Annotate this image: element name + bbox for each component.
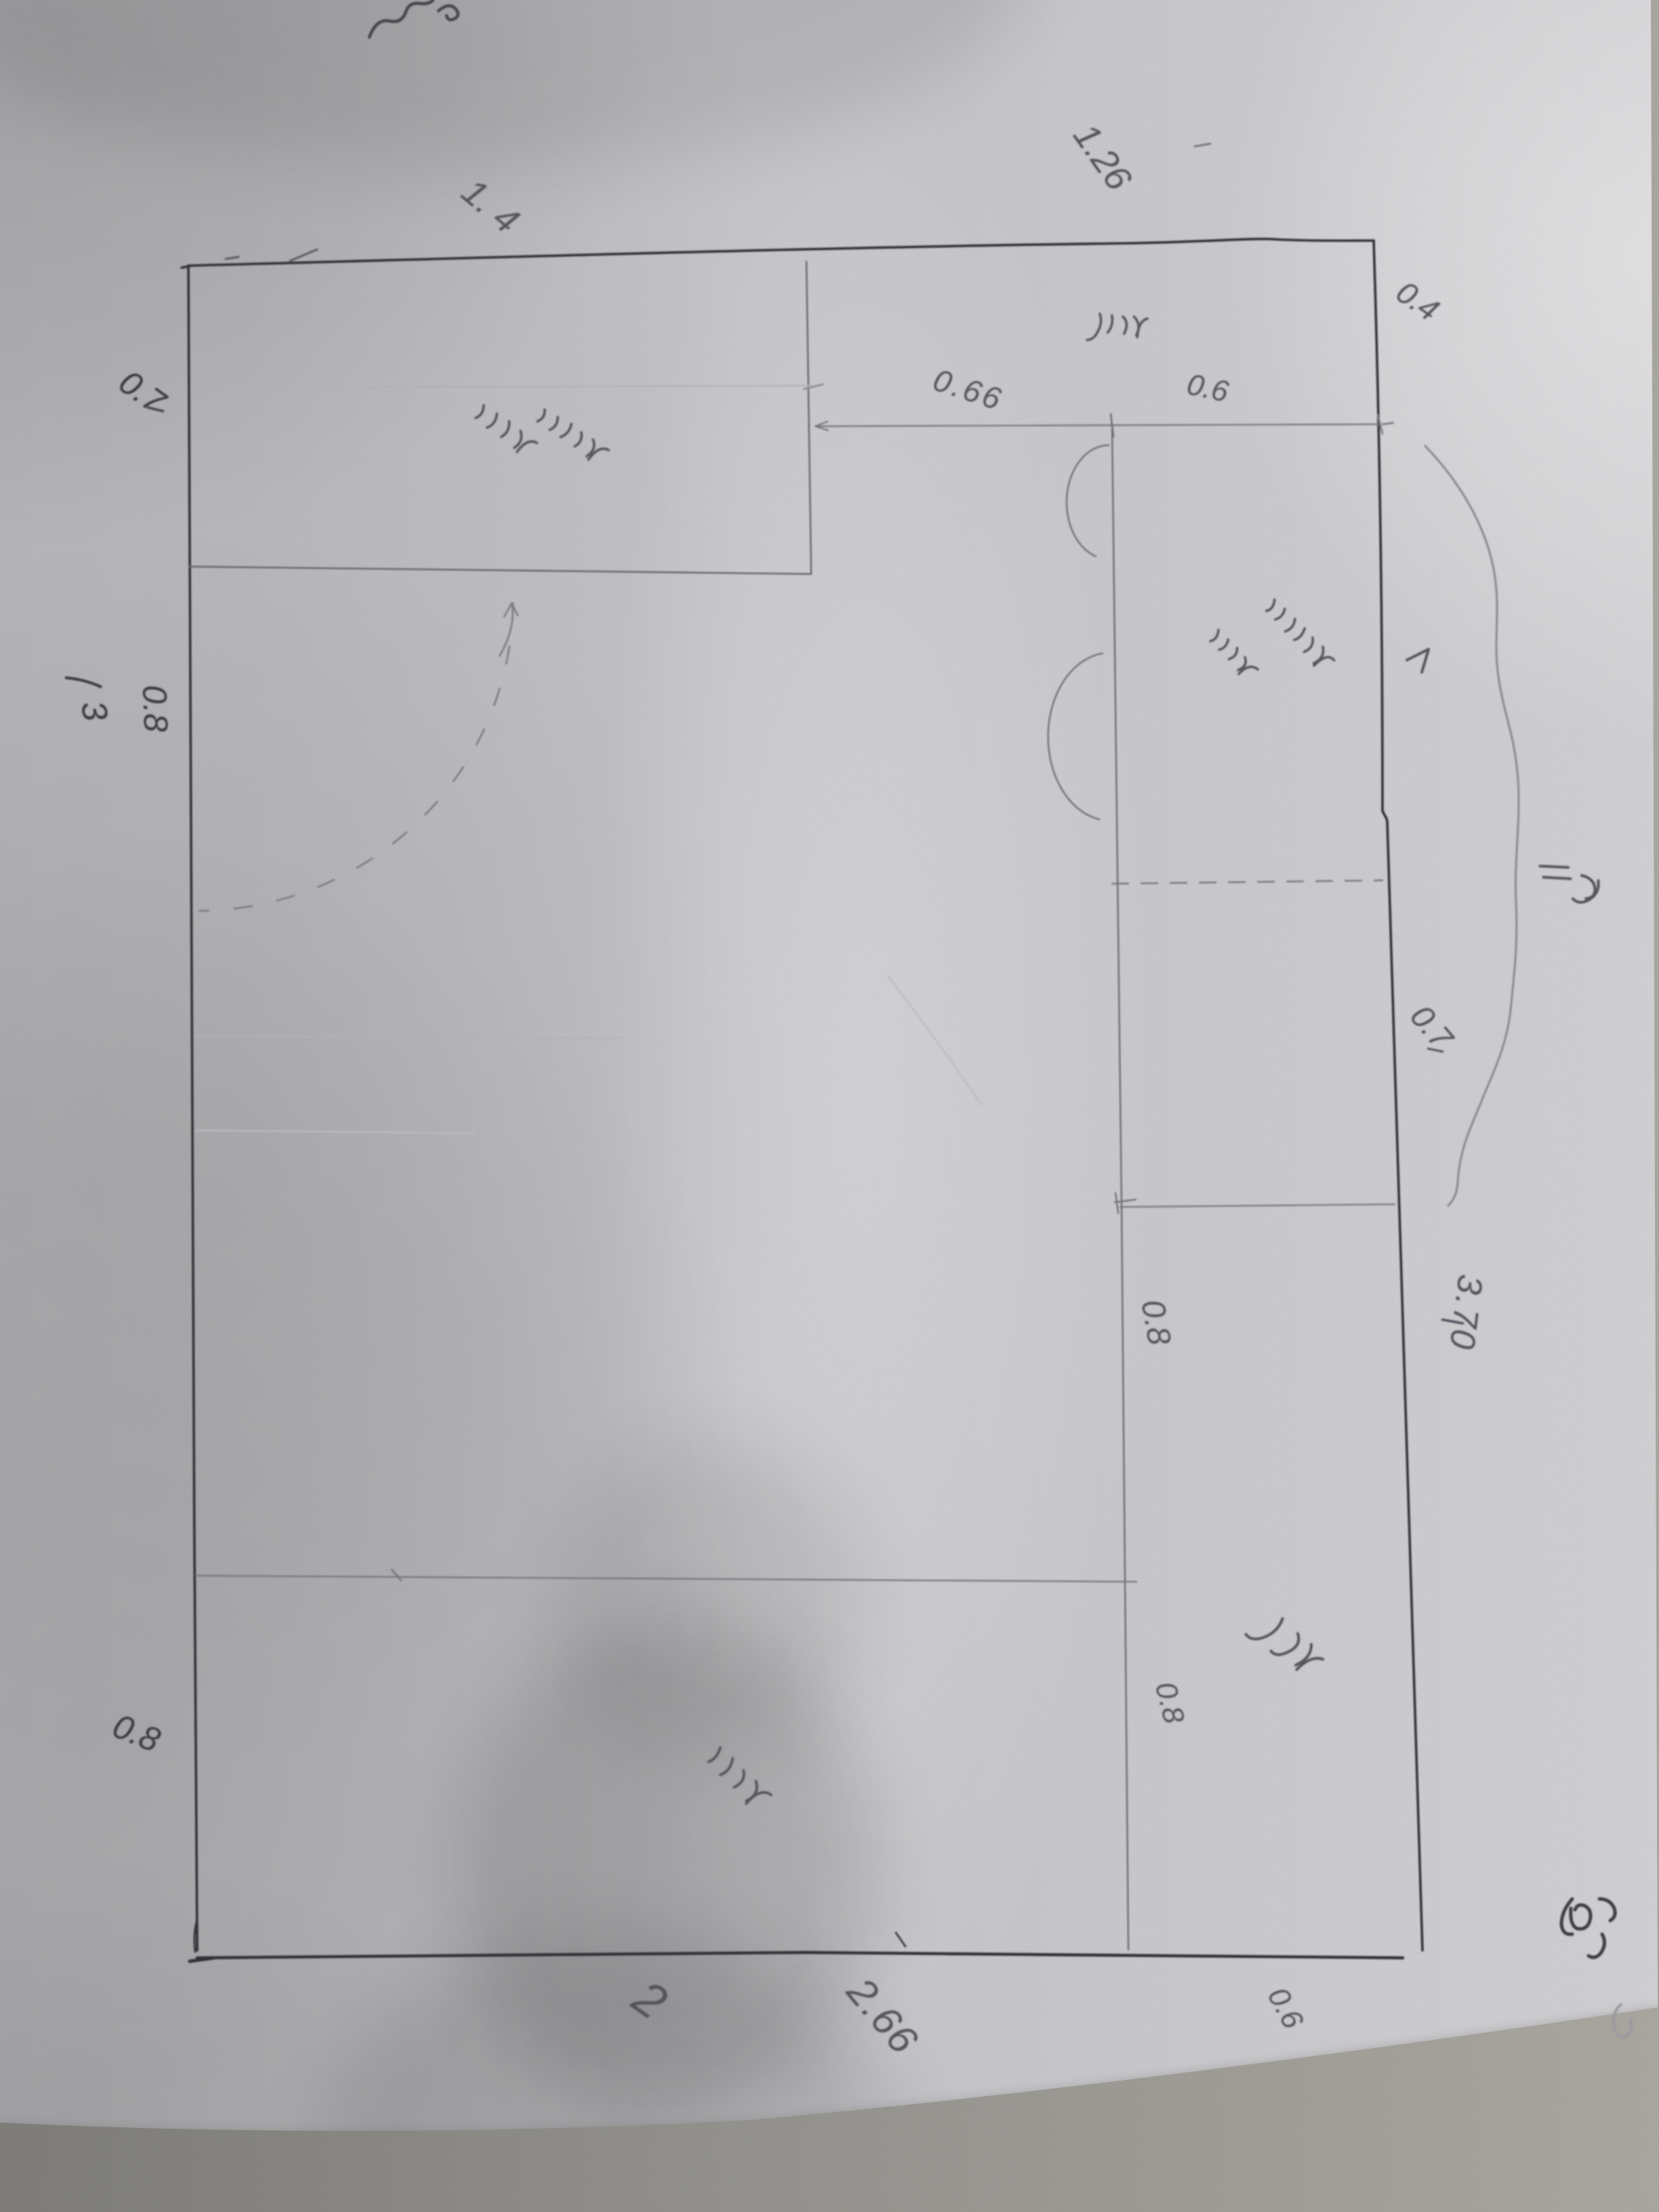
svg-text:0.8: 0.8 [136, 684, 175, 733]
